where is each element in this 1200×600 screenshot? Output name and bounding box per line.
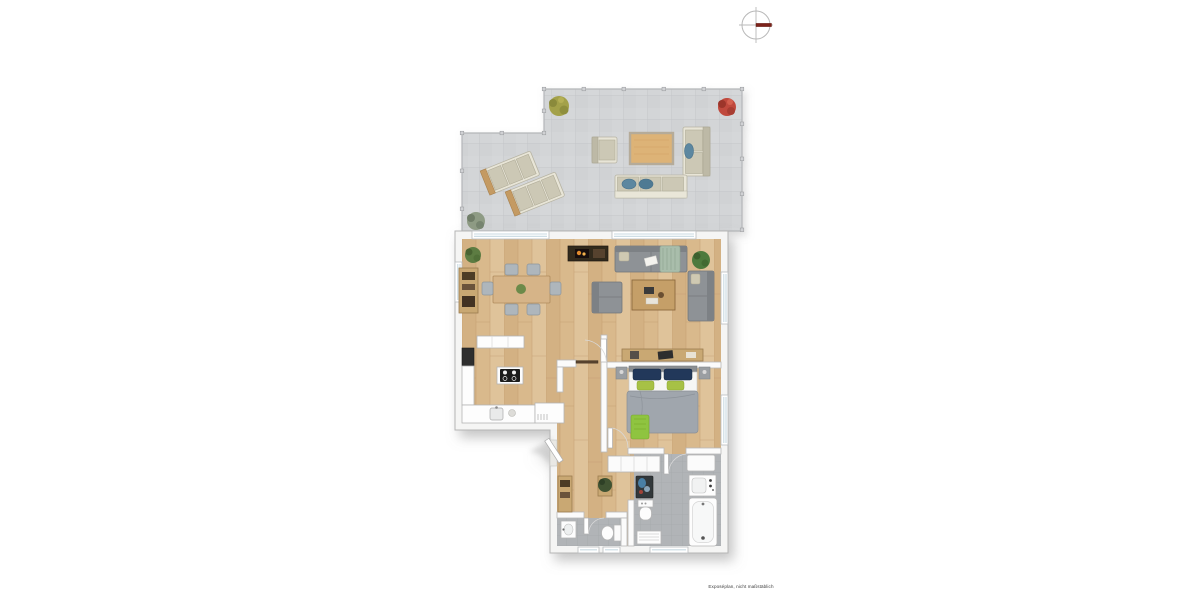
bathtub: [689, 498, 717, 546]
outdoor-armchair: [592, 137, 617, 163]
washing-machine: [636, 476, 653, 498]
door-kitchen-open-leaf: [576, 361, 598, 364]
navy-pillow: [633, 369, 661, 380]
cooktop-island: [497, 367, 523, 384]
hall-closet: [608, 456, 660, 472]
fireplace-media-unit: [568, 246, 608, 261]
floorplan-page: Exposéplan, nicht maßstäblich: [0, 0, 1200, 600]
floorplan-canvas: Exposéplan, nicht maßstäblich: [0, 0, 1200, 600]
kitchen-counter-left: [462, 366, 474, 405]
plan-caption: Exposéplan, nicht maßstäblich: [708, 584, 774, 589]
kitchen-counter-row: [477, 336, 524, 348]
pillow: [619, 252, 629, 261]
window-wc-right: [603, 547, 620, 553]
window-wc-left: [578, 547, 599, 553]
compass: [739, 7, 773, 43]
outdoor-sofa: [615, 175, 687, 198]
hall-sideboard: [558, 476, 572, 512]
bedroom-sideboard: [622, 349, 703, 361]
shrub-red-icon: [718, 98, 736, 116]
washbasin-counter: [689, 475, 716, 496]
dining-sideboard: [459, 268, 478, 313]
window-bathroom: [650, 547, 688, 553]
plant-icon: [692, 251, 710, 269]
faucet-icon: [562, 528, 564, 530]
sofa-right: [688, 271, 714, 321]
outdoor-sofa: [683, 127, 710, 176]
toilet-bathroom: [638, 500, 653, 520]
blue-pillow: [685, 144, 694, 159]
faucet-icon: [702, 503, 705, 506]
laundry-blue: [638, 478, 646, 488]
dining-table: [493, 276, 550, 303]
laptop-icon: [658, 350, 674, 360]
lamp-icon: [703, 370, 707, 374]
vanity-cabinet: [687, 455, 715, 471]
blue-pillow: [622, 179, 636, 189]
kitchen-peninsula-shelf: [535, 403, 564, 423]
window-terrace-right: [612, 231, 696, 239]
double-bed: [627, 366, 698, 439]
green-pillow: [667, 381, 684, 390]
plant-icon: [465, 247, 481, 263]
wc-washbasin: [561, 521, 576, 538]
terrace: [460, 87, 744, 231]
drain-icon: [701, 536, 705, 540]
window-bedroom-right: [721, 395, 728, 445]
apartment: [455, 231, 728, 553]
table-plant-icon: [516, 284, 526, 294]
window-living-right: [721, 272, 728, 324]
sofa-top: [615, 246, 687, 272]
lamp-icon: [620, 370, 624, 374]
flame-icon: [577, 251, 581, 255]
navy-pillow: [664, 369, 692, 380]
faucet-icon: [709, 485, 712, 488]
wc-toilet: [602, 525, 622, 541]
shrub-olive-icon: [549, 96, 569, 116]
coffee-table: [632, 280, 675, 310]
hall-console-plant: [598, 476, 612, 496]
window-terrace-left: [472, 231, 549, 239]
blue-pillow: [639, 179, 653, 189]
outdoor-coffee-table: [630, 133, 673, 164]
faucet-icon: [709, 479, 712, 482]
shrub-gray-icon: [467, 212, 485, 230]
armchair: [592, 282, 622, 313]
kitchen-tall-cabinet: [462, 348, 474, 366]
compass-east-needle-icon: [756, 23, 772, 26]
pillow: [691, 274, 700, 284]
towel-radiator: [637, 531, 661, 544]
green-pillow: [637, 381, 654, 390]
